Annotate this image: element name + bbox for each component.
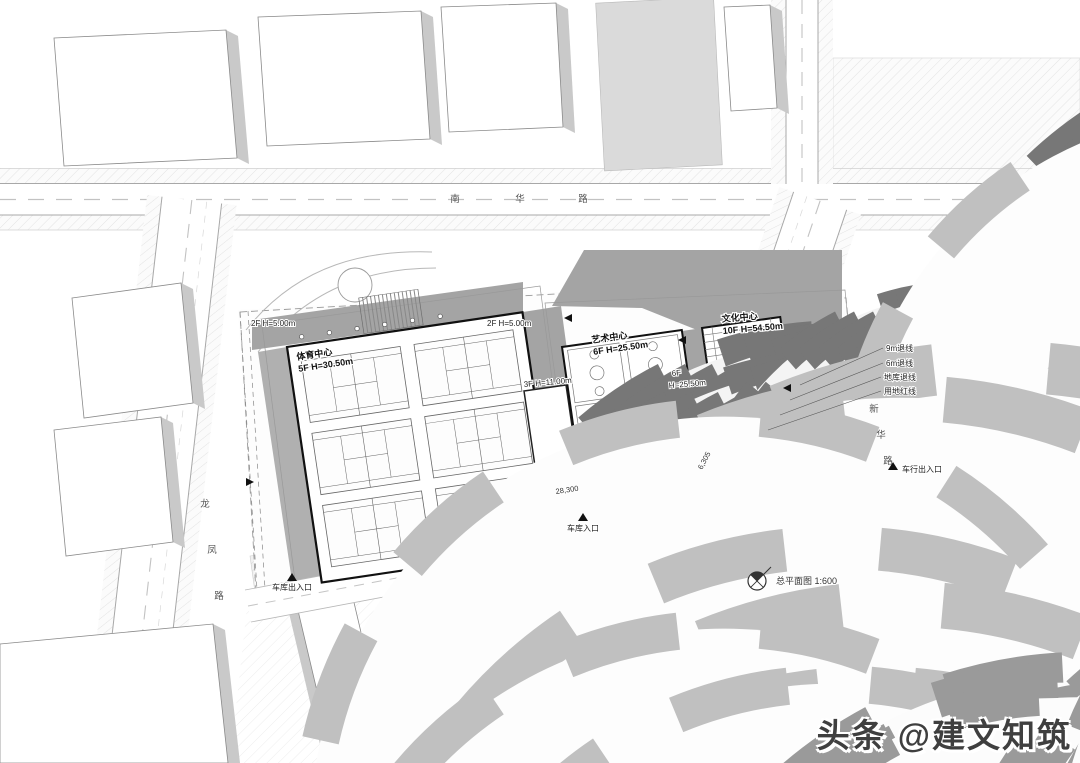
plan-title: 总平面图 1:600 [776,575,837,586]
road-char: 龙 [200,498,210,510]
tower-6f-label-line1: 6F [671,368,681,378]
road-char: 路 [578,193,588,205]
setback-label-garage: 地库退线 [884,372,916,382]
tree-grove-band [596,0,723,171]
setback-label-9m: 9m退线 [886,343,913,353]
garage-out-label: 车库出入口 [272,582,312,592]
setback-label-redline: 用地红线 [884,386,916,396]
setback-label-6m: 6m退线 [886,358,913,368]
road-char: 路 [883,455,893,467]
watermark: 头条 @建文知筑 [817,709,1072,757]
road-char: 新 [869,403,879,415]
site-plan-svg: 南 华 路 龙 凤 路 新 华 路 体育中心 5F H=30.50m 艺术中心 … [0,0,1080,763]
road-char: 路 [214,590,224,602]
podium-west-label: 2F H=5.00m [251,319,296,328]
podium-east-label: 2F H=5.00m [487,319,532,328]
vehicle-entrance-label: 车行出入口 [902,464,942,474]
garage-in-label: 车库入口 [567,523,599,533]
site-plan-canvas: 南 华 路 龙 凤 路 新 华 路 体育中心 5F H=30.50m 艺术中心 … [0,0,1080,763]
road-char: 南 [450,193,460,205]
road-char: 华 [876,429,886,441]
road-char: 华 [515,193,525,205]
road-char: 凤 [207,545,217,556]
road-name-left: 龙 凤 路 [200,498,224,602]
